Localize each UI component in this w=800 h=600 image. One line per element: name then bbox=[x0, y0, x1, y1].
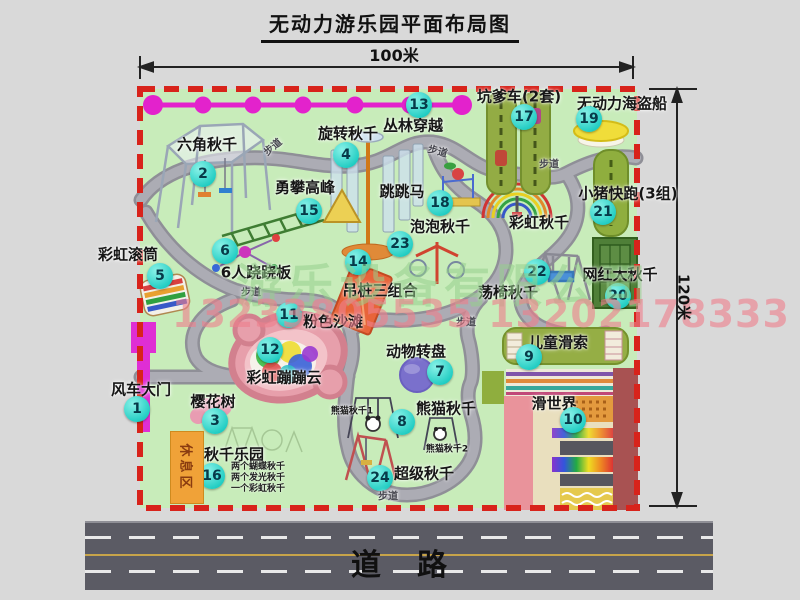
attraction-label-11: 粉色沙滩 bbox=[303, 311, 363, 332]
attraction-badge-4: 4 bbox=[333, 142, 359, 168]
attraction-badge-1: 1 bbox=[124, 396, 150, 422]
attraction-badge-23: 23 bbox=[387, 231, 413, 257]
attraction-badge-10: 10 bbox=[560, 407, 586, 433]
attraction-label-4: 旋转秋千 bbox=[318, 123, 378, 144]
park-layout-map: 无动力游乐园平面布局图 100米 120米 bbox=[0, 0, 800, 600]
attraction-badge-15: 15 bbox=[296, 198, 322, 224]
attraction-label-2: 六角秋千 bbox=[177, 134, 237, 155]
attraction-badge-3: 3 bbox=[202, 408, 228, 434]
attraction-badge-17: 17 bbox=[511, 104, 537, 130]
walkway-label-3: 步道 bbox=[539, 156, 559, 171]
attraction-label-22: 荡椅秋千 bbox=[478, 282, 538, 303]
attraction-badge-6: 6 bbox=[212, 238, 238, 264]
walkway-label-6: 步道 bbox=[378, 488, 398, 503]
road-lane-line-top bbox=[85, 536, 713, 539]
attraction-badge-11: 11 bbox=[276, 302, 302, 328]
extra-label-3: 熊猫秋千2 bbox=[426, 442, 468, 455]
attraction-label-24: 超级秋千 bbox=[394, 463, 454, 484]
attraction-badge-2: 2 bbox=[190, 161, 216, 187]
attraction-badge-7: 7 bbox=[427, 359, 453, 385]
attraction-badge-9: 9 bbox=[516, 344, 542, 370]
attraction-badge-14: 14 bbox=[345, 249, 371, 275]
attraction-label-5: 彩虹滚筒 bbox=[98, 244, 158, 265]
attraction-badge-19: 19 bbox=[576, 106, 602, 132]
attraction-badge-20: 20 bbox=[605, 283, 631, 309]
attraction-label-12: 彩虹蹦蹦云 bbox=[246, 367, 321, 388]
attraction-label-18: 跳跳马 bbox=[379, 181, 424, 202]
attraction-badge-5: 5 bbox=[147, 263, 173, 289]
swing-park-notes: 两个蝴蝶秋千两个发光秋千一个彩虹秋千 bbox=[231, 462, 285, 495]
dimension-width-label: 100米 bbox=[369, 42, 418, 66]
attraction-label-21: 小猪快跑(3组) bbox=[578, 183, 677, 204]
attraction-badge-18: 18 bbox=[427, 190, 453, 216]
attraction-label-20: 网红大秋千 bbox=[582, 264, 657, 285]
walkway-label-1: 步道 bbox=[260, 134, 285, 158]
extra-label-2: 熊猫秋千1 bbox=[331, 404, 373, 417]
road-label: 道路 bbox=[351, 540, 483, 584]
attraction-label-15: 勇攀高峰 bbox=[275, 177, 335, 198]
attraction-label-6: 6人跷跷板 bbox=[221, 262, 291, 283]
rest-area: 休息区 bbox=[170, 431, 204, 504]
walkway-label-2: 步道 bbox=[426, 140, 449, 160]
walkway-label-5: 步道 bbox=[456, 314, 476, 329]
page-title: 无动力游乐园平面布局图 bbox=[261, 8, 519, 43]
attraction-label-8: 熊猫秋千 bbox=[416, 398, 476, 419]
dimension-height-label: 120米 bbox=[674, 274, 695, 320]
road: 道路 bbox=[85, 521, 713, 590]
attraction-badge-8: 8 bbox=[389, 409, 415, 435]
attraction-badge-12: 12 bbox=[257, 337, 283, 363]
attraction-badge-22: 22 bbox=[524, 259, 550, 285]
rest-area-label: 休息区 bbox=[178, 443, 197, 491]
attraction-badge-21: 21 bbox=[590, 199, 616, 225]
attraction-badge-13: 13 bbox=[406, 92, 432, 118]
walkway-label-4: 步道 bbox=[241, 284, 261, 299]
attraction-label-23: 泡泡秋千 bbox=[410, 216, 470, 237]
extra-label-1: 彩虹秋千 bbox=[509, 212, 569, 233]
attraction-label-14: 吊桩三组合 bbox=[342, 280, 417, 301]
attraction-label-13: 丛林穿越 bbox=[383, 115, 443, 136]
attraction-label-17: 坑爹车(2套) bbox=[477, 86, 561, 107]
